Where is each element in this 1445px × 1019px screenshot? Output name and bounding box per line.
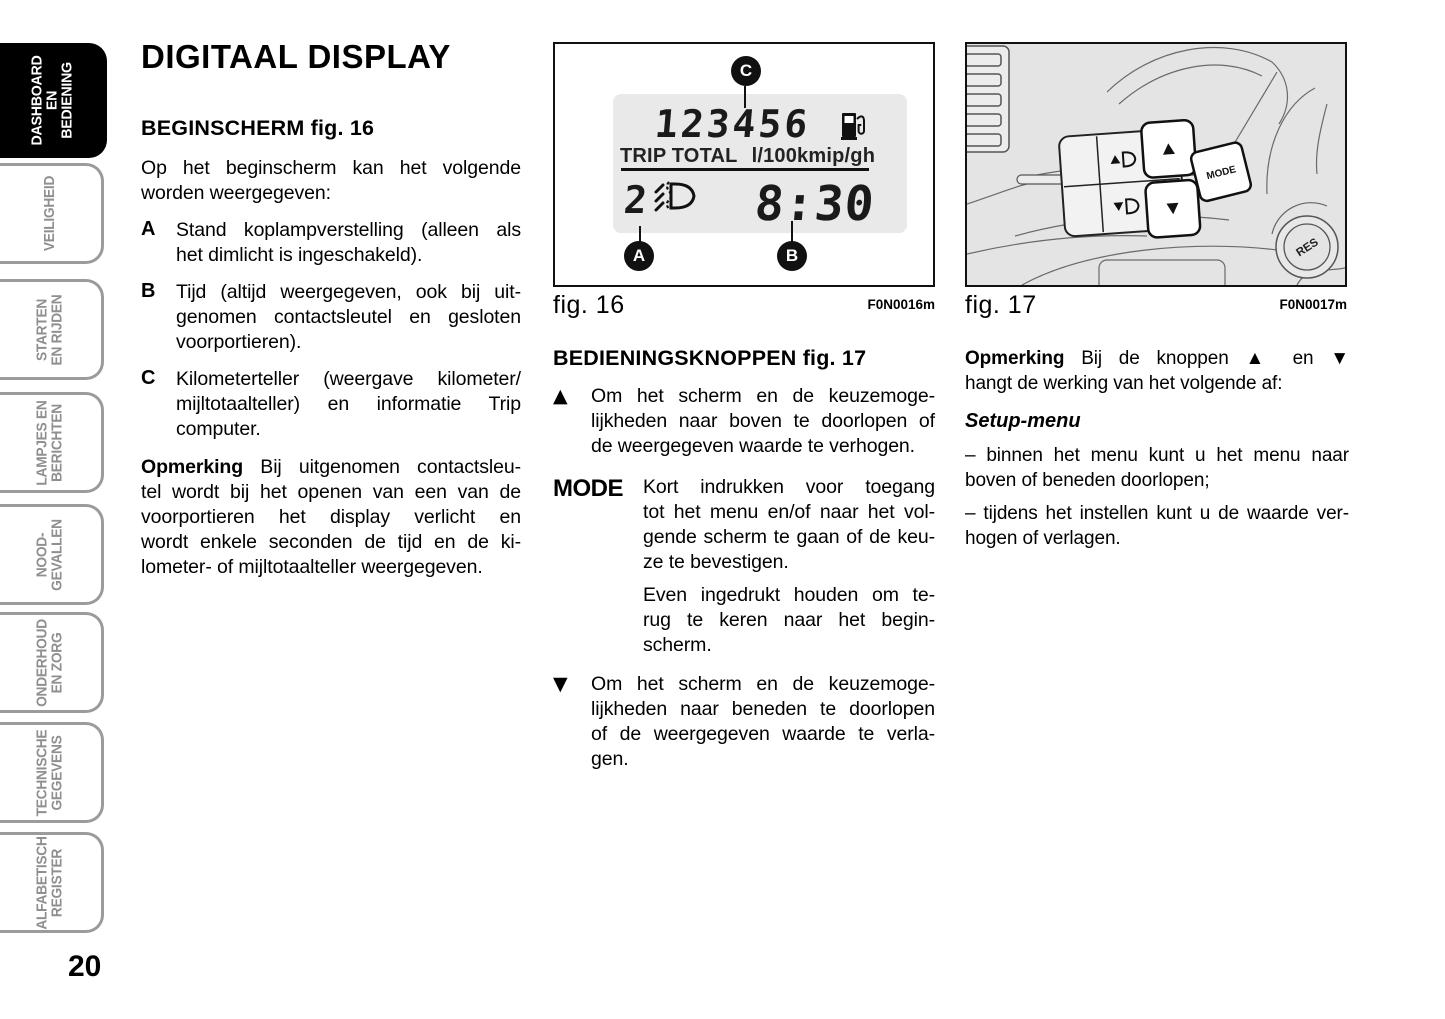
callout-line-b bbox=[791, 221, 793, 243]
list-text-c: Kilometerteller (weergave kilometer/mijl… bbox=[176, 367, 521, 442]
figure-17-label: fig. 17 bbox=[965, 291, 1037, 320]
figure-16-label: fig. 16 bbox=[553, 291, 625, 320]
up-button-text: Om het scherm en de keuzemoge-lijkheden … bbox=[591, 384, 935, 459]
list-item-b: B Tijd (altijd weergegeven, ook bij uit-… bbox=[141, 280, 521, 355]
sidebar-tab-alfabetisch-register: ALFABETISCHREGISTER bbox=[0, 832, 104, 933]
sidebar-tab-lampjes-en-berichten: LAMPJES ENBERICHTEN bbox=[0, 392, 104, 493]
sidebar-tab-dashboard-en-bediening: DASHBOARDEN BEDIENING bbox=[0, 43, 107, 158]
list-key-a: A bbox=[141, 218, 155, 241]
figure-16: 123456 TRIP TOTAL l/100kmip/gh 2 bbox=[553, 42, 935, 287]
up-arrow-icon: ▲ bbox=[553, 385, 568, 407]
headlight-position-value: 2 bbox=[622, 178, 649, 222]
fuel-pump-icon bbox=[841, 109, 865, 146]
clock-value: 8:30 bbox=[753, 176, 877, 232]
sidebar-tab-technische-gegevens: TECHNISCHEGEGEVENS bbox=[0, 722, 104, 823]
sidebar-tab-label: NOOD-GEVALLEN bbox=[36, 507, 66, 603]
sidebar-tab-label: TECHNISCHEGEGEVENS bbox=[36, 725, 66, 821]
up-button-item: ▲ Om het scherm en de keuzemoge-lijkhede… bbox=[553, 384, 935, 459]
sidebar-tab-label: STARTENEN RIJDEN bbox=[36, 282, 66, 378]
page-title: DIGITAAL DISPLAY bbox=[141, 40, 521, 74]
section-heading-bedieningsknoppen: BEDIENINGSKNOPPEN fig. 17 bbox=[553, 346, 935, 370]
list-item-c: C Kilometerteller (weergave kilometer/mi… bbox=[141, 367, 521, 442]
list-text-b: Tijd (altijd weergegeven, ook bij uit-ge… bbox=[176, 280, 521, 355]
setup-bullet-1: – binnen het menu kunt u het menu naarbo… bbox=[965, 443, 1349, 493]
sidebar-tab-label: VEILIGHEID bbox=[43, 166, 58, 262]
sidebar-tab-label: LAMPJES ENBERICHTEN bbox=[36, 395, 66, 491]
callout-line-c bbox=[744, 86, 746, 108]
note-paragraph: Opmerking Bij uitgenomen contactsleu-tel… bbox=[141, 455, 521, 580]
list-text-a: Stand koplampverstelling (alleen alshet … bbox=[176, 218, 521, 268]
button-panel bbox=[1058, 120, 1201, 244]
list-item-a: A Stand koplampverstelling (alleen alshe… bbox=[141, 218, 521, 268]
callout-a: A bbox=[624, 241, 654, 271]
air-vent bbox=[967, 46, 1009, 152]
mode-button: MODE bbox=[1190, 141, 1253, 202]
callout-b: B bbox=[777, 241, 807, 271]
down-button-text: Om het scherm en de keuzemoge-lijkheden … bbox=[591, 672, 935, 772]
down-button-item: ▼ Om het scherm en de keuzemoge-lijkhede… bbox=[553, 672, 935, 772]
odometer-value: 123456 bbox=[653, 102, 812, 146]
setup-menu-heading: Setup-menu bbox=[965, 410, 1349, 433]
setup-bullet-2: – tijdens het instellen kunt u de waarde… bbox=[965, 501, 1349, 551]
mode-text-1: Kort indrukken voor toegangtot het menu … bbox=[643, 475, 935, 575]
mode-label: MODE bbox=[553, 475, 623, 503]
sidebar-tab-label: ONDERHOUDEN ZORG bbox=[36, 615, 66, 711]
figure-17-caption-row: fig. 17 F0N0017m bbox=[965, 290, 1347, 320]
down-button bbox=[1145, 179, 1201, 237]
list-key-c: C bbox=[141, 367, 155, 390]
figure-17-code: F0N0017m bbox=[1279, 297, 1347, 320]
dashboard-drawing: MODE RES bbox=[967, 44, 1345, 285]
figure-16-caption-row: fig. 16 F0N0016m bbox=[553, 290, 935, 320]
low-beam-headlight-icon bbox=[649, 177, 701, 224]
sidebar-tab-veiligheid: VEILIGHEID bbox=[0, 163, 104, 264]
mode-text-2: Even ingedrukt houden om te-rug te keren… bbox=[643, 583, 935, 658]
sidebar-tab-starten-en-rijden: STARTENEN RIJDEN bbox=[0, 279, 104, 380]
digital-display-panel: 123456 TRIP TOTAL l/100kmip/gh 2 bbox=[613, 94, 907, 233]
figure-17: MODE RES bbox=[965, 42, 1347, 287]
sidebar-tab-onderhoud-en-zorg: ONDERHOUDEN ZORG bbox=[0, 612, 104, 713]
display-divider-line bbox=[621, 168, 869, 171]
left-column: DIGITAAL DISPLAY BEGINSCHERM fig. 16 Op … bbox=[141, 40, 521, 580]
figure-16-code: F0N0016m bbox=[867, 297, 935, 320]
display-units-row: TRIP TOTAL l/100kmip/gh bbox=[620, 145, 872, 168]
section-heading-beginscherm: BEGINSCHERM fig. 16 bbox=[141, 116, 521, 140]
trip-total-label: TRIP TOTAL bbox=[620, 145, 738, 168]
up-button bbox=[1141, 120, 1197, 178]
page-number: 20 bbox=[68, 950, 101, 984]
intro-paragraph: Op het beginscherm kan het volgendeworde… bbox=[141, 156, 521, 206]
list-key-b: B bbox=[141, 280, 155, 303]
sidebar-tab-label: DASHBOARDEN BEDIENING bbox=[30, 51, 75, 150]
middle-column: 123456 TRIP TOTAL l/100kmip/gh 2 bbox=[553, 42, 935, 772]
units-label: l/100kmip/gh bbox=[752, 145, 876, 168]
sidebar-tab-nood-gevallen: NOOD-GEVALLEN bbox=[0, 504, 104, 605]
mode-button-item: MODE Kort indrukken voor toegangtot het … bbox=[553, 475, 935, 658]
right-column: MODE RES fig. 17 F0N0017m Opmerking Bij … bbox=[965, 42, 1349, 559]
sidebar-tab-label: ALFABETISCHREGISTER bbox=[36, 835, 66, 931]
right-note-paragraph: Opmerking Bij de knoppen ▲ en ▼hangt de … bbox=[965, 346, 1349, 396]
down-arrow-icon: ▼ bbox=[553, 673, 568, 695]
callout-c: C bbox=[731, 56, 761, 86]
